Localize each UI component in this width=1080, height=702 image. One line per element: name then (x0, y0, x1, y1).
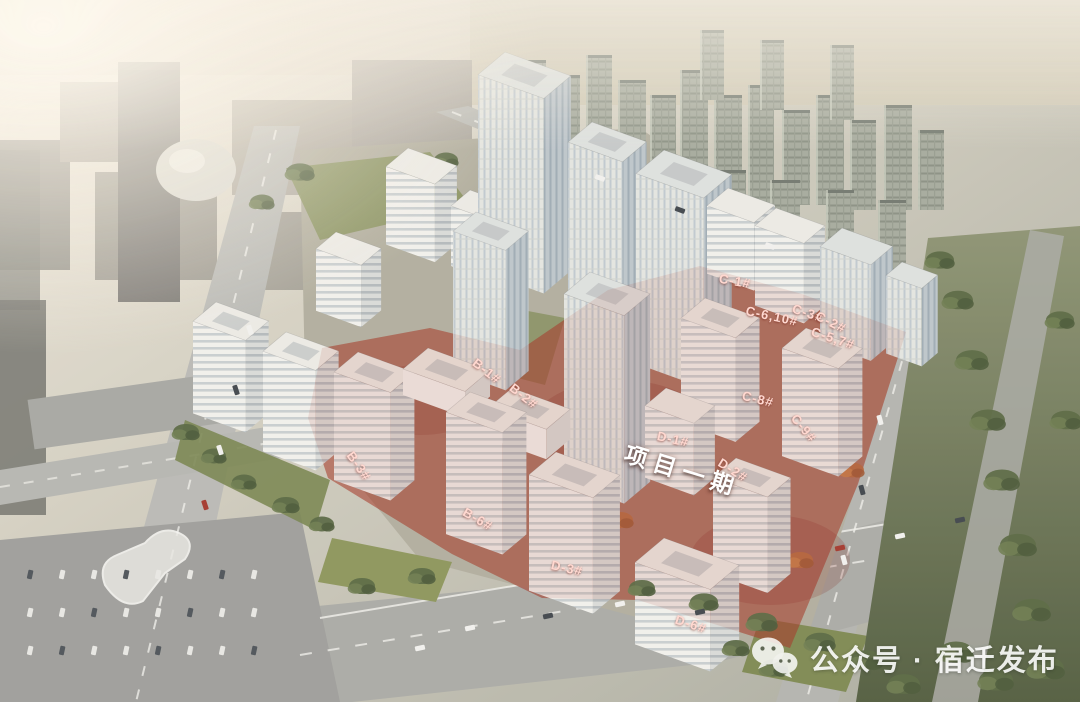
aerial-rendering-screenshot: 项目一期 B-1#B-2#B-3#B-6#C-1#C-6,10#C-3#C-2#… (0, 0, 1080, 702)
watermark: 公众号 · 宿迁发布 (748, 634, 1059, 682)
watermark-text: 公众号 · 宿迁发布 (810, 637, 1059, 679)
wechat-icon (748, 634, 800, 682)
aerial-city-rendering (0, 0, 1080, 702)
haze-layer (0, 0, 1080, 702)
